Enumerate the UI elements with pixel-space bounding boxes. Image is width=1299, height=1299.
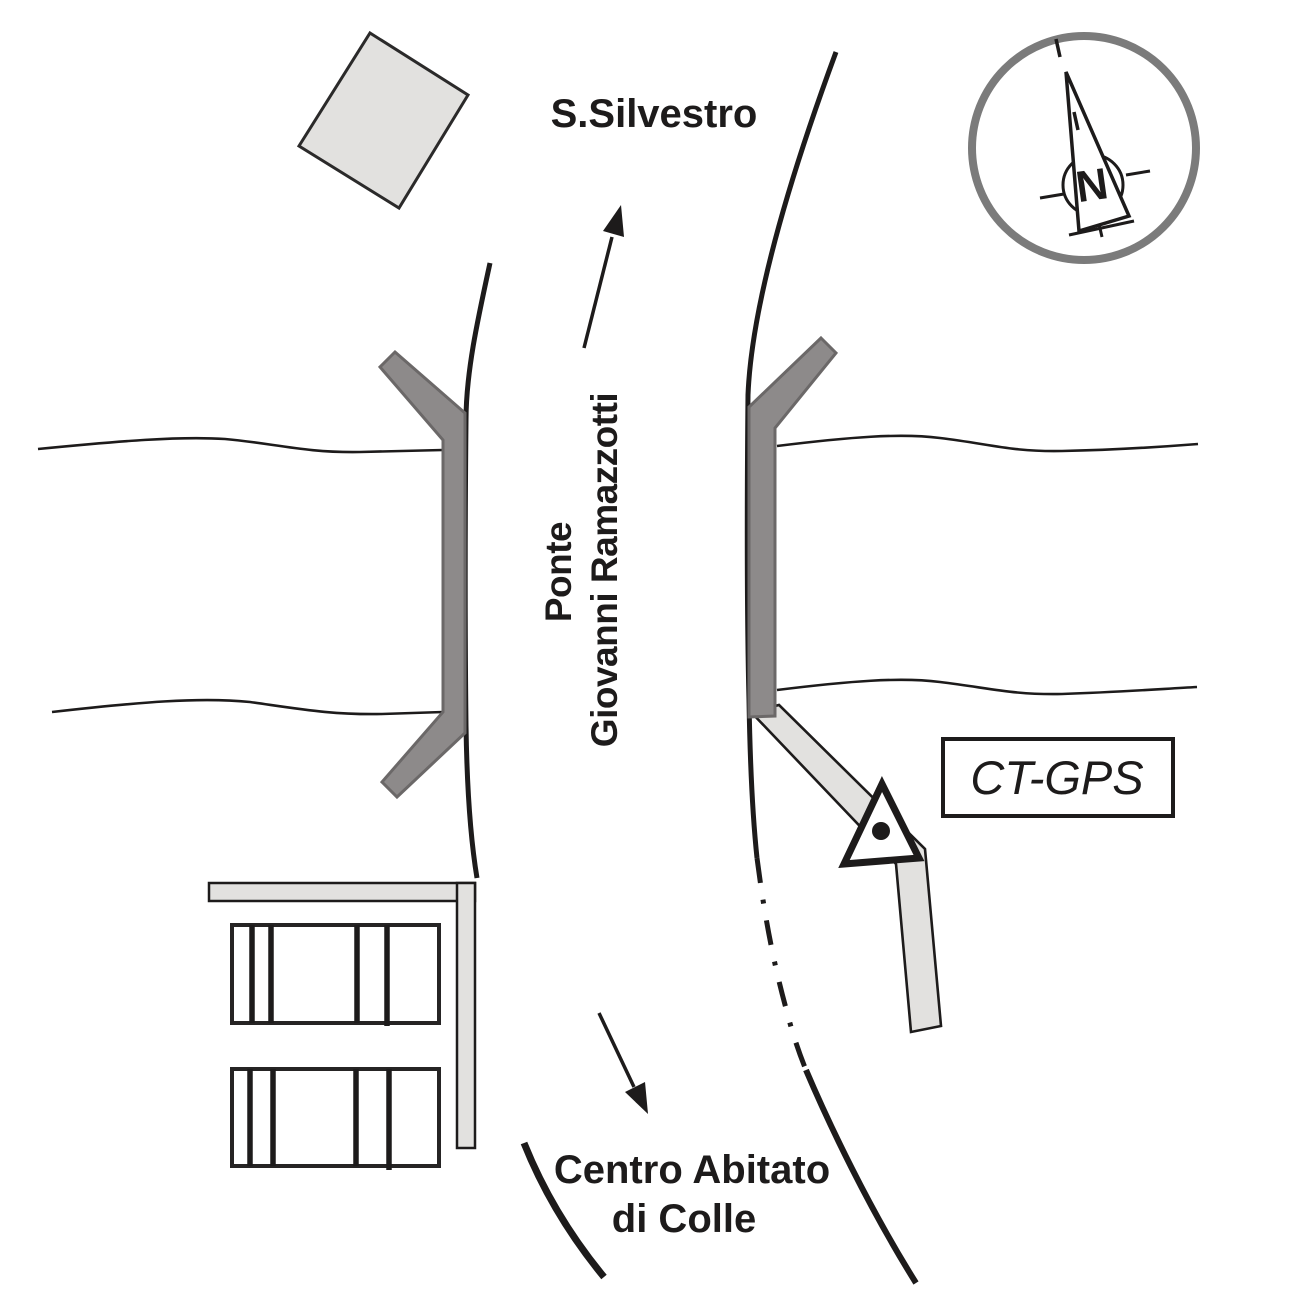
road-left-line	[465, 263, 490, 878]
destination-south-label-line1: Centro Abitato	[554, 1148, 830, 1192]
road-right-dashed-line	[757, 858, 806, 1070]
retaining-wall-horizontal	[209, 883, 475, 901]
north-arrow-head-icon	[603, 205, 624, 237]
building-block-2	[232, 1069, 439, 1166]
river-bank-lower-left-line	[52, 700, 443, 714]
compass-north-label: N	[1073, 159, 1111, 212]
building-block-1	[232, 925, 439, 1023]
south-direction-arrow	[599, 1013, 648, 1114]
station-label: CT-GPS	[970, 751, 1143, 804]
river-bank-upper-left-line	[38, 438, 443, 452]
south-arrow-shaft	[599, 1013, 634, 1087]
bridge-name-line1: Ponte	[538, 522, 579, 622]
south-arrow-head-icon	[625, 1082, 648, 1114]
bridge-parapet-right	[749, 338, 836, 717]
north-arrow-shaft	[584, 237, 612, 348]
river-bank-upper-right-line	[777, 436, 1198, 451]
destination-north-label: S.Silvestro	[551, 92, 758, 136]
compass-tick-west	[1040, 194, 1064, 198]
destination-south-label-line2: di Colle	[612, 1197, 756, 1241]
retaining-wall-vertical	[457, 883, 475, 1148]
river-bank-lower-right-line	[777, 680, 1197, 694]
map-canvas: N CT-GPS S.Silvestro Ponte Giovanni Rama…	[0, 0, 1299, 1299]
compass-tick-east	[1126, 171, 1150, 175]
gps-station-dot	[872, 822, 890, 840]
north-direction-arrow	[584, 205, 624, 348]
compass-rose-icon: N	[972, 36, 1196, 260]
bridge-name-line2: Giovanni Ramazzotti	[584, 393, 625, 747]
bridge-parapet-left	[380, 352, 465, 797]
building-rotated-square	[299, 33, 468, 208]
site-sketch-map: N CT-GPS S.Silvestro Ponte Giovanni Rama…	[0, 0, 1299, 1299]
